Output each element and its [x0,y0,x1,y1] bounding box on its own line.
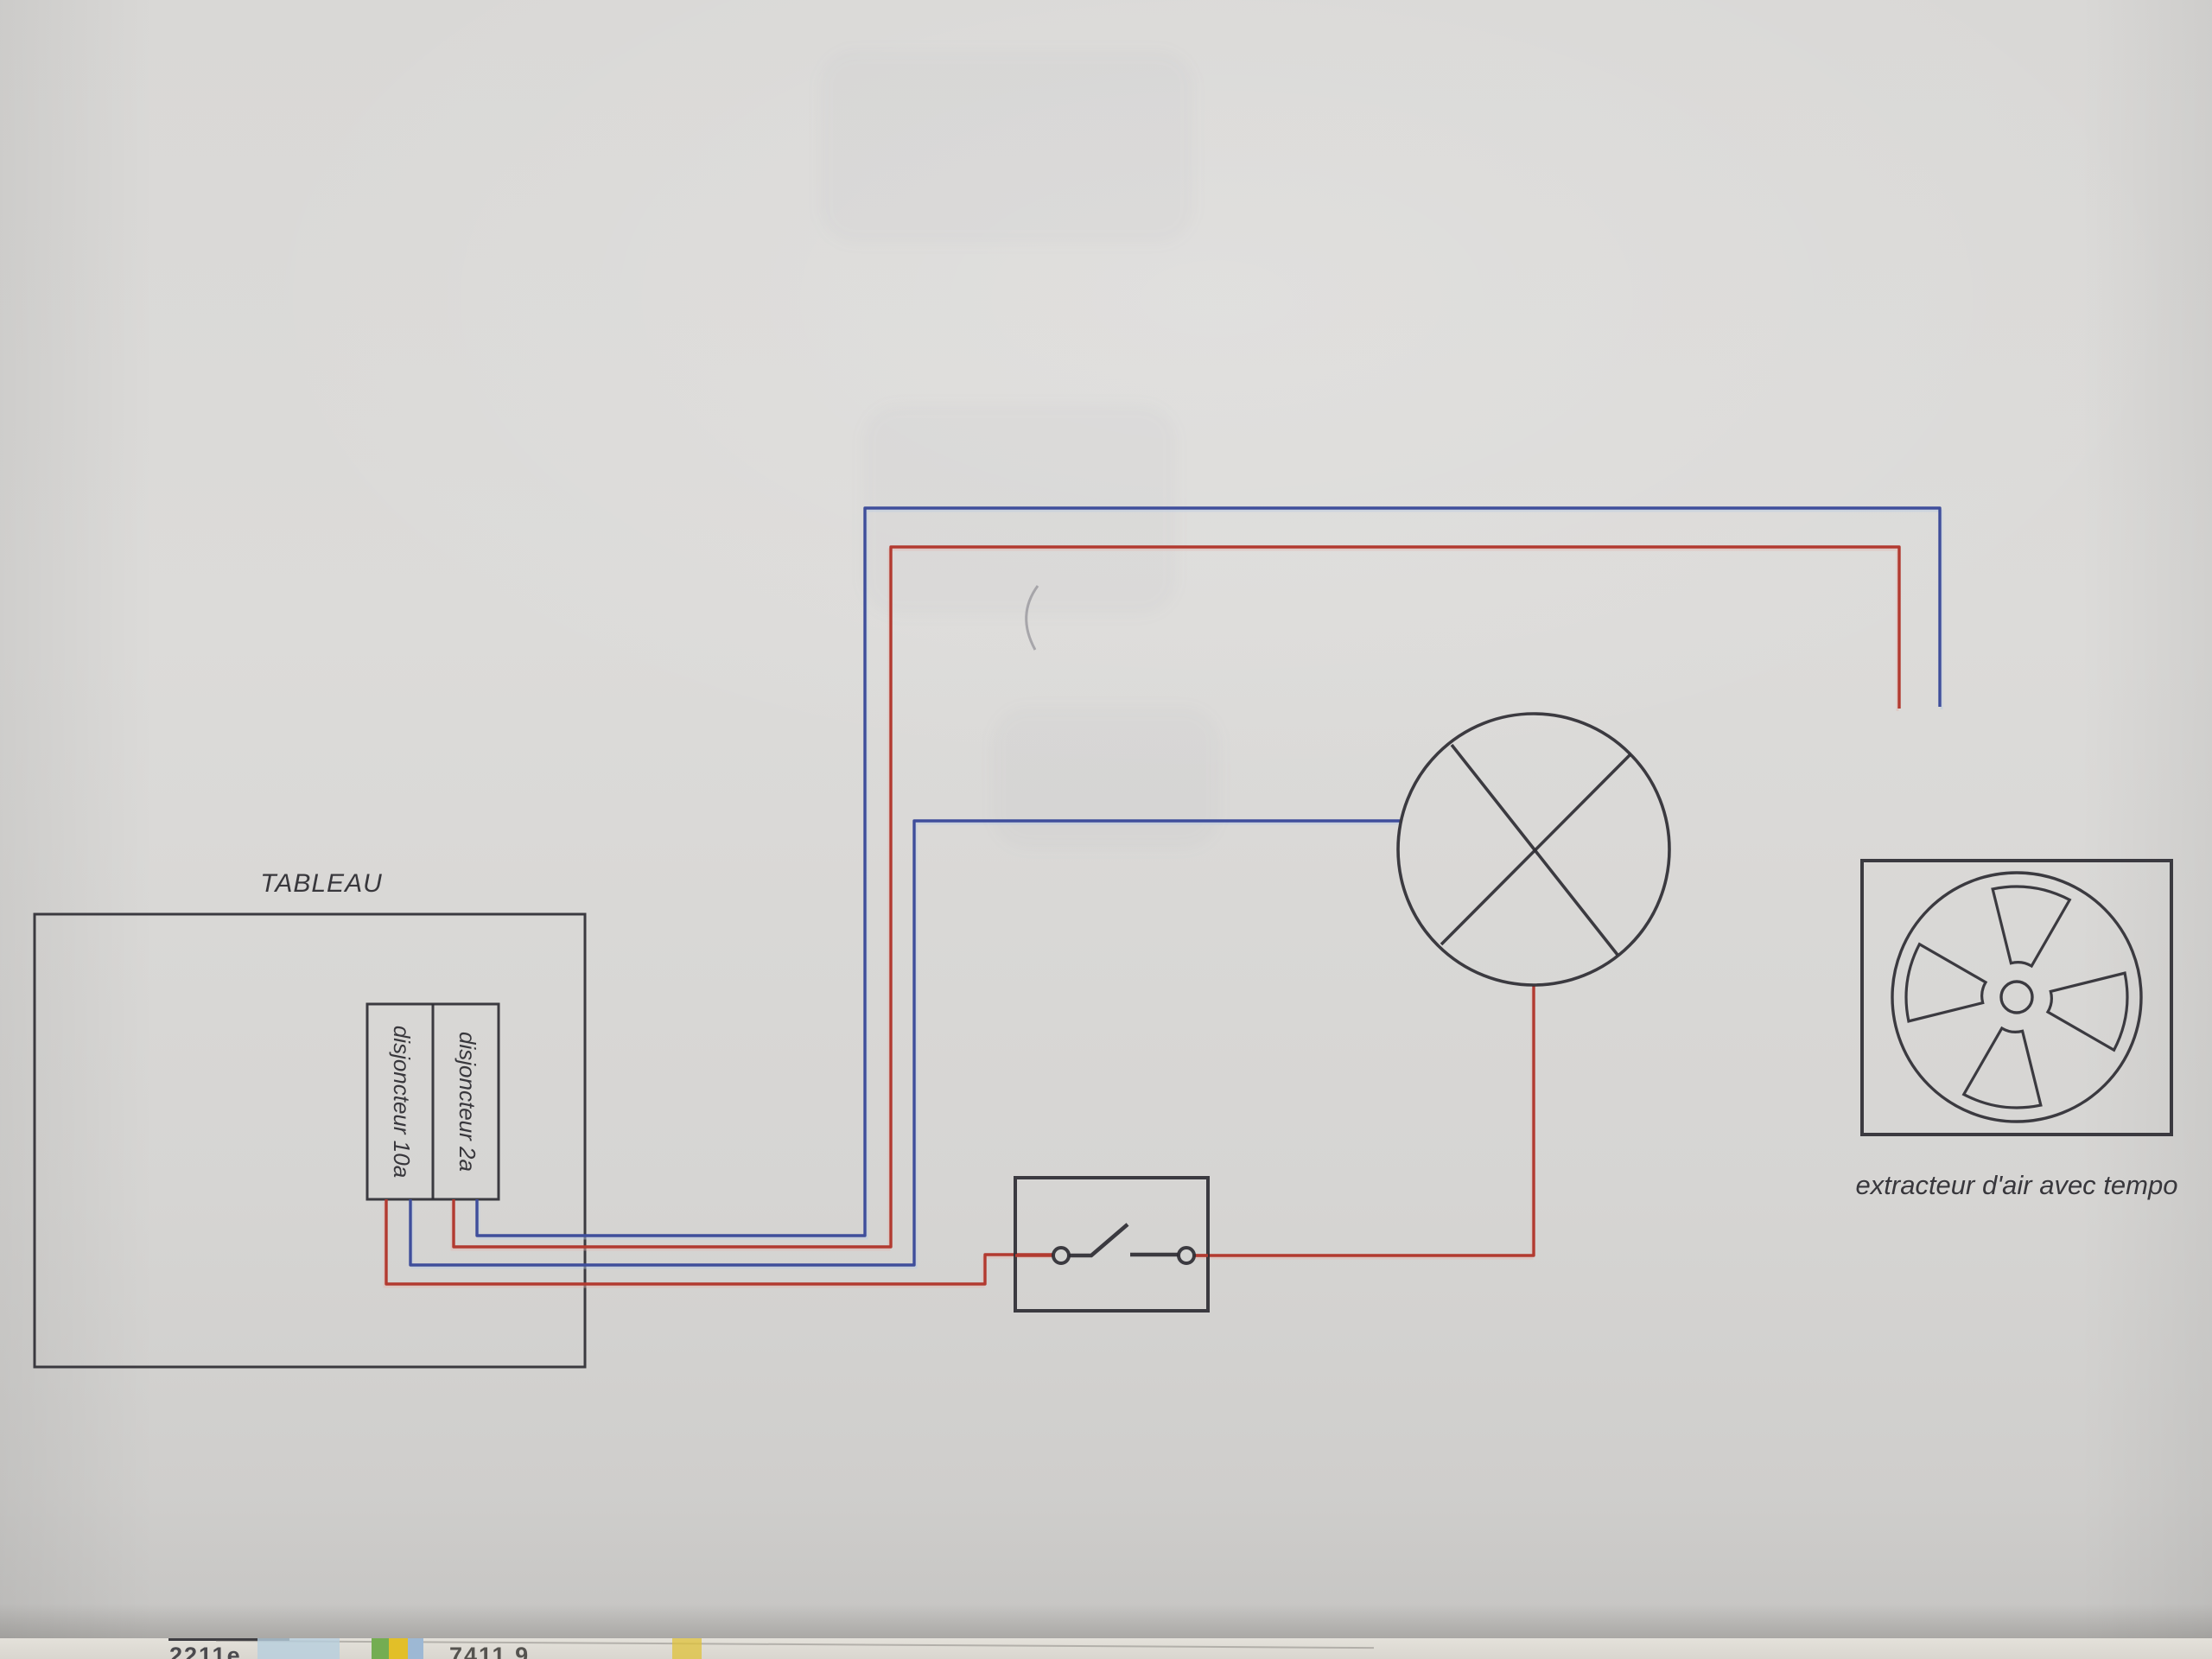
paper-edge-shadow [0,1604,2212,1638]
switch-box [1015,1178,1208,1311]
wire-halo [1192,988,1532,1258]
wire-halo [479,511,1942,1238]
wire-halo [385,1202,1052,1287]
live-wire-switch-to-lamp [1194,986,1534,1255]
fan-blade [1983,882,2071,970]
switch-right-terminal [1179,1248,1194,1263]
wire-halo [452,550,1897,1249]
panel-title: TABLEAU [260,869,383,898]
fan-blade [1963,1024,2051,1112]
wiring-diagram-svg: TABLEAU disjoncteur 10a disjoncteur 2a [0,0,2212,1659]
fan-icon: extracteur d'air avec tempo [1856,861,2178,1200]
live-wire-10a [386,1199,1053,1284]
fan-blade [2044,963,2132,1052]
wire-halos [385,511,1942,1287]
switch-left-terminal [1053,1248,1069,1263]
underlay-text-fragment: 2211e [169,1643,242,1659]
extractor-caption: extracteur d'air avec tempo [1856,1170,2178,1200]
underlay-text-fragment: 7411.9 [449,1643,530,1659]
underlay-color-patch-green [372,1638,389,1659]
underlay-color-patch-blue [257,1638,340,1659]
underlay-color-patch-lightblue [408,1638,423,1659]
fan-blade [1902,944,1990,1032]
underlay-color-patch-yellow [389,1638,408,1659]
underlay-color-patch-yellow [672,1638,702,1659]
switch-lever [1069,1224,1128,1255]
photographed-wiring-diagram: TABLEAU disjoncteur 10a disjoncteur 2a [0,0,2212,1659]
lamp-cross-line [1441,754,1630,944]
neutral-wire-10a [410,821,1400,1265]
neutral-wire-2a [477,508,1940,1236]
breaker-right-label: disjoncteur 2a [454,1032,480,1172]
lamp-icon [1398,714,1669,985]
panel-outline [35,914,585,1367]
underlying-papers-strip: 2211e 7411.9 [0,1638,2212,1659]
pen-mark [1027,586,1038,650]
fan-hub [2001,982,2032,1013]
panel-group: TABLEAU disjoncteur 10a disjoncteur 2a [35,869,585,1367]
wire-halo [412,823,1402,1268]
live-wire-2a [454,547,1899,1247]
breaker-left-label: disjoncteur 10a [389,1026,415,1178]
switch-icon [1015,1178,1208,1311]
fan-box [1862,861,2171,1135]
fan-ring [1892,873,2141,1122]
